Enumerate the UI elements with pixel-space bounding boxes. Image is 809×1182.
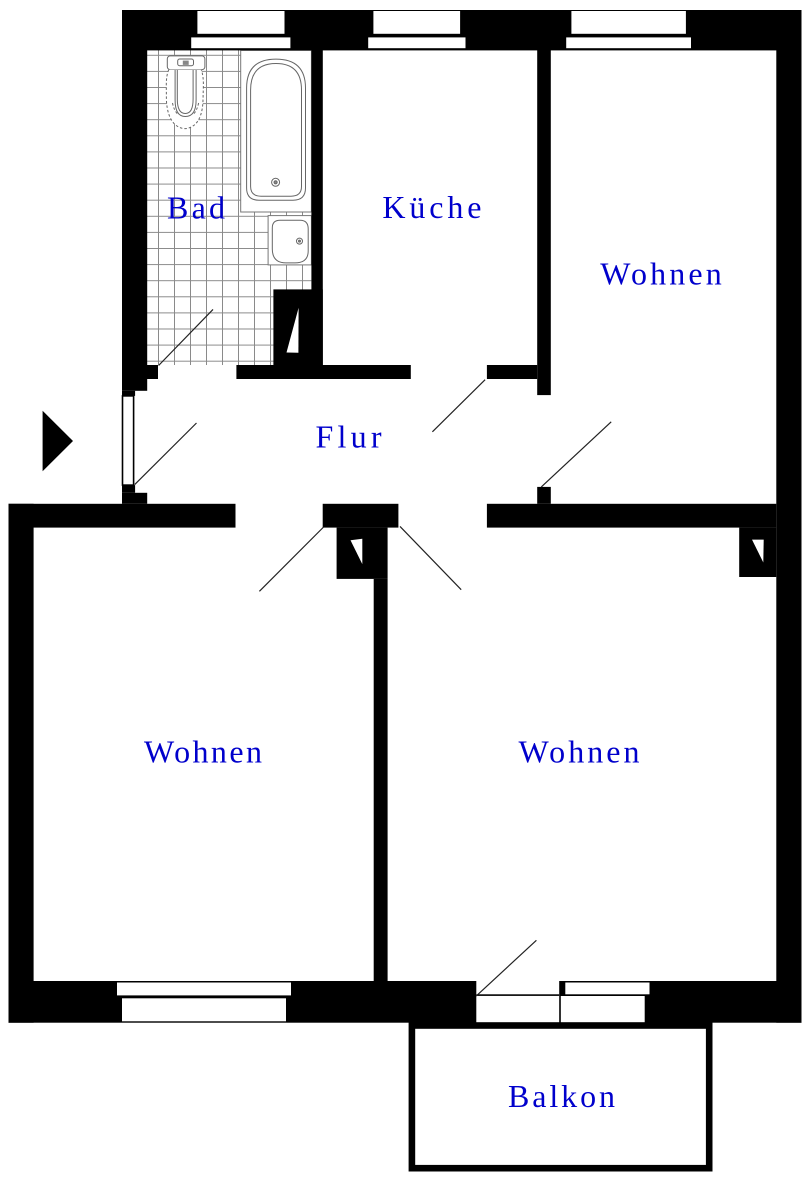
svg-text:Bad: Bad — [167, 190, 225, 226]
svg-text:Küche: Küche — [382, 189, 481, 225]
svg-text:Balkon: Balkon — [508, 1078, 615, 1114]
